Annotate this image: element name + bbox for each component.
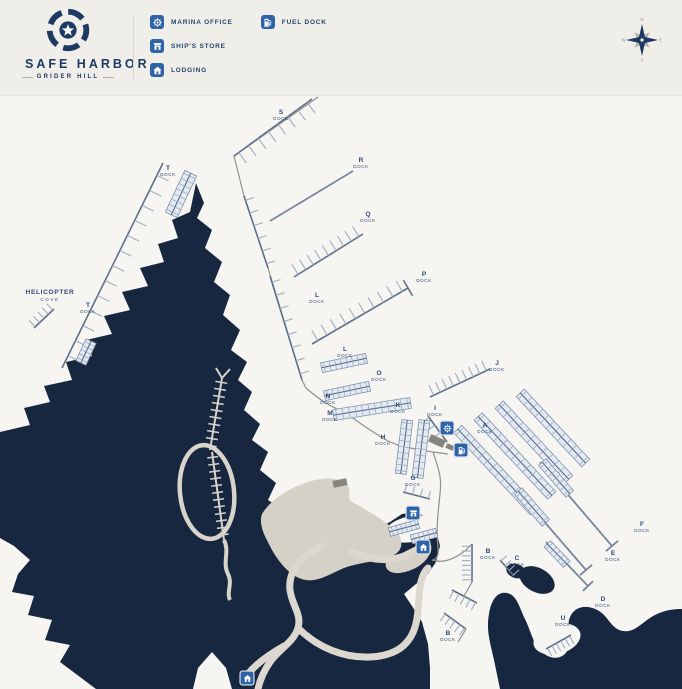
brand-location-text: GRIDER HILL bbox=[37, 74, 100, 80]
header-divider bbox=[133, 14, 134, 80]
brand-location: GRIDER HILL bbox=[22, 74, 114, 80]
brand-name: SAFE HARBOR bbox=[25, 57, 114, 71]
legend-label: SHIP'S STORE bbox=[171, 43, 226, 50]
brand-rule-right bbox=[103, 77, 114, 78]
ships-store-icon bbox=[150, 39, 164, 53]
lodging-icon bbox=[150, 63, 164, 77]
safe-harbor-logo-icon bbox=[43, 5, 93, 55]
compass-letter-N: N bbox=[640, 17, 643, 22]
legend-column: MARINA OFFICESHIP'S STORELODGING bbox=[150, 15, 233, 77]
fuel-dock-icon bbox=[261, 15, 275, 29]
marina-office-icon bbox=[150, 15, 164, 29]
compass-rose: NESW bbox=[620, 16, 664, 69]
marina-map bbox=[0, 0, 682, 689]
marina-map-page: SAFE HARBOR GRIDER HILL MARINA OFFICESHI… bbox=[0, 0, 682, 689]
header: SAFE HARBOR GRIDER HILL MARINA OFFICESHI… bbox=[0, 0, 682, 96]
compass-hub bbox=[640, 38, 643, 41]
legend-item-fuel-dock: FUEL DOCK bbox=[261, 15, 327, 29]
compass-letter-E: E bbox=[659, 38, 662, 43]
compass-letter-S: S bbox=[640, 58, 643, 63]
legend-item-ships-store: SHIP'S STORE bbox=[150, 39, 233, 53]
brand: SAFE HARBOR GRIDER HILL bbox=[22, 5, 114, 80]
legend-column: FUEL DOCK bbox=[261, 15, 327, 77]
legend-label: LODGING bbox=[171, 67, 207, 74]
legend-label: FUEL DOCK bbox=[282, 19, 327, 26]
legend-item-marina-office: MARINA OFFICE bbox=[150, 15, 233, 29]
brand-rule-left bbox=[22, 77, 33, 78]
compass-letter-W: W bbox=[621, 38, 626, 43]
legend: MARINA OFFICESHIP'S STORELODGINGFUEL DOC… bbox=[150, 15, 327, 77]
legend-item-lodging: LODGING bbox=[150, 63, 233, 77]
legend-label: MARINA OFFICE bbox=[171, 19, 233, 26]
